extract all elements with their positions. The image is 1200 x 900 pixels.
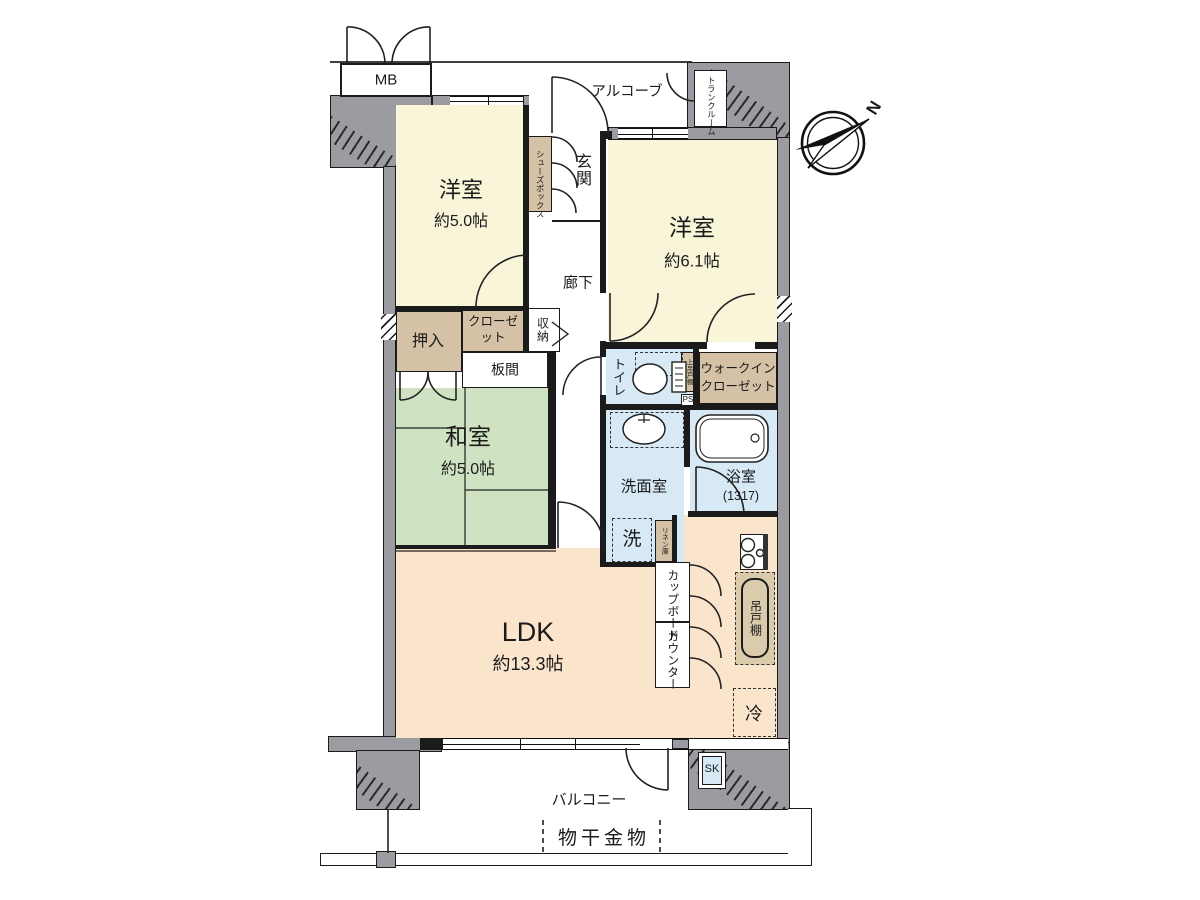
hanging-cabinet-label: 吊戸棚 (748, 600, 763, 636)
floor-plan: アルコーブ MB トランクルーム 玄関 シューズボックス 洋室 約5.0帖 洋室… (0, 0, 1200, 900)
bathroom-size: (1317) (723, 489, 759, 505)
toilet-upper-cabinet-label: 上吊戸棚 (684, 359, 692, 385)
mb-label: MB (375, 72, 398, 91)
shoe-box-label: シューズボックス (534, 150, 546, 198)
counter-label: カウンター (664, 630, 680, 676)
plan-linework (0, 0, 1200, 900)
corridor-label: 廊下 (563, 275, 593, 294)
japanese-name: 和室 (445, 423, 491, 452)
bathtub-icon (696, 415, 768, 462)
western2-name: 洋室 (669, 214, 715, 243)
stove-icon (742, 534, 769, 570)
linen-label: リネン庫 (660, 527, 669, 555)
toilet-label: トイレ (610, 358, 626, 397)
drying-fixture-label: 物干金物 (558, 827, 650, 851)
storage-label: 収納 (535, 317, 550, 343)
closet-label: クローゼット (465, 314, 521, 345)
washroom-label: 洗面室 (621, 477, 668, 496)
pipe-space-label: PS (683, 395, 694, 405)
western2-size: 約6.1帖 (664, 252, 720, 273)
washer-label: 洗 (622, 528, 641, 552)
balcony-label: バルコニー (552, 792, 627, 811)
trunk-room-label: トランクルーム (705, 76, 718, 120)
western1-name: 洋室 (439, 176, 483, 204)
sk-label: SK (705, 763, 720, 777)
fridge-label: 冷 (745, 703, 763, 726)
alcove-label: アルコーブ (591, 83, 662, 101)
oshiire-label: 押入 (412, 332, 444, 352)
entrance-label: 玄関 (571, 153, 591, 187)
wic-label: ウォークインクローゼット (699, 361, 777, 396)
compass-icon (795, 112, 869, 174)
japanese-size: 約5.0帖 (441, 460, 495, 480)
toilet-bowl-icon (633, 364, 667, 394)
bathroom-name: 浴室 (726, 469, 756, 488)
ldk-name: LDK (502, 616, 555, 650)
western1-size: 約5.0帖 (434, 212, 488, 232)
itama-label: 板間 (491, 361, 519, 379)
ldk-size: 約13.3帖 (492, 653, 563, 676)
cupboard-label: カップボード (664, 569, 680, 615)
